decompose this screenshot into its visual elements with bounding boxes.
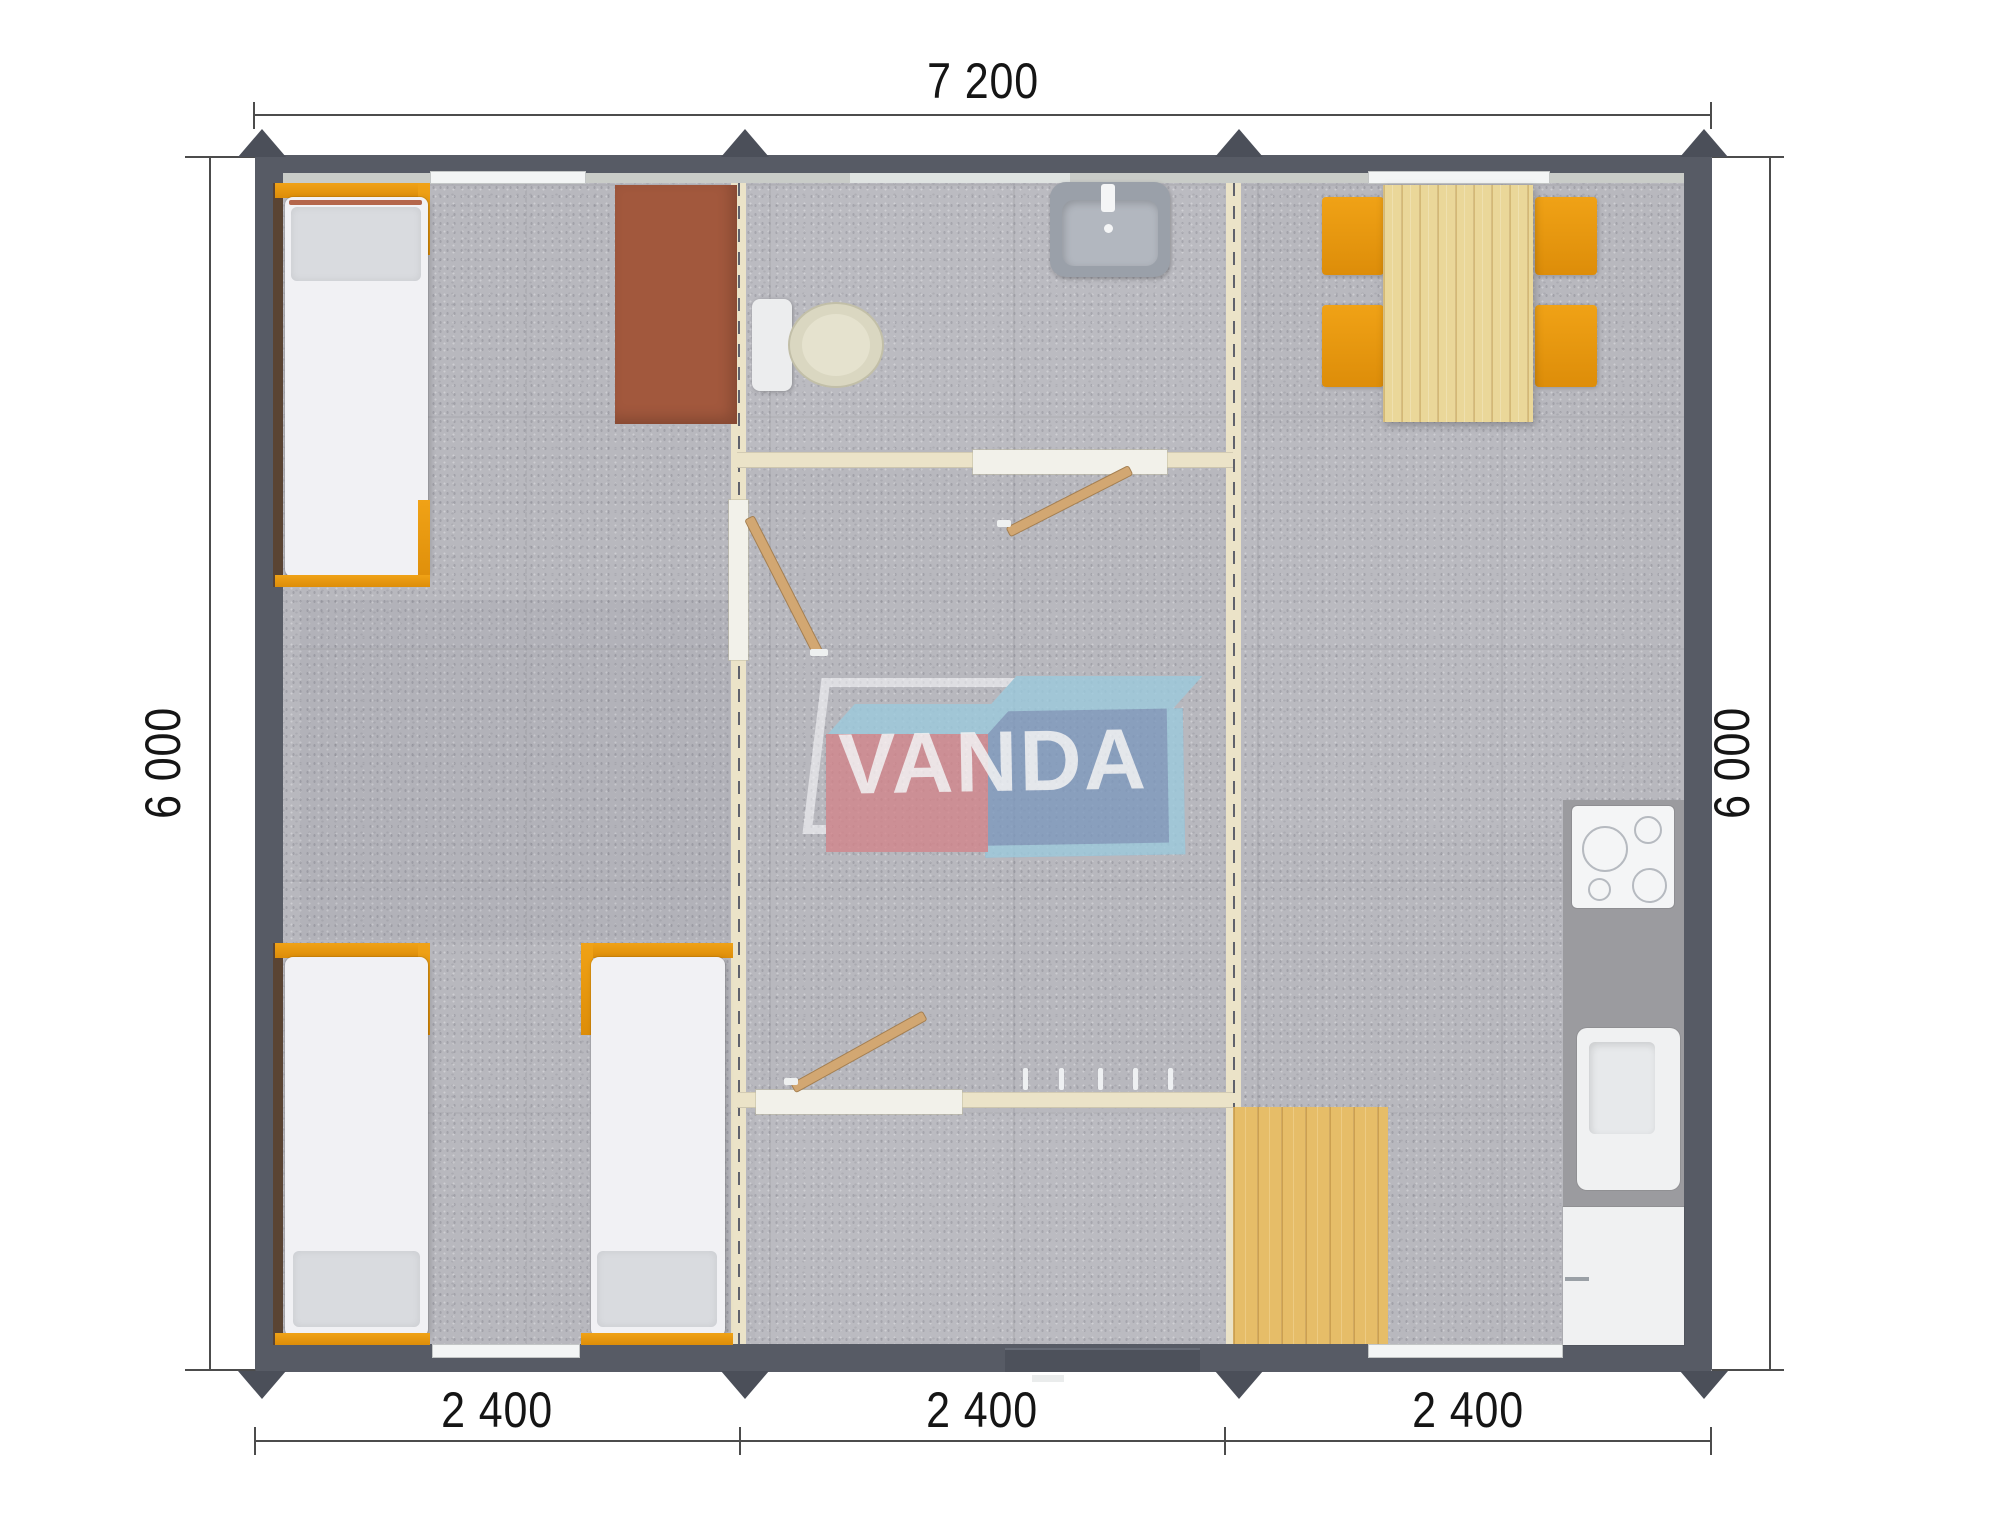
- chair-icon: [1322, 305, 1384, 387]
- dimension-label-bottom-right: 2 400: [1368, 1384, 1568, 1436]
- window: [432, 1344, 580, 1358]
- floor-plan-canvas: 7 200 2 400 2 400 2 400 6 000 6 000: [0, 0, 2000, 1537]
- dimension-text: 7 200: [927, 52, 1039, 110]
- dimension-text: 2 400: [1412, 1384, 1524, 1436]
- bed-frame: [275, 183, 430, 198]
- cooktop-icon: [1572, 806, 1674, 908]
- module-joint-marker: [1680, 129, 1728, 157]
- kitchen-cabinet: [1563, 1207, 1684, 1345]
- window: [850, 173, 1070, 183]
- dimension-label-top: 7 200: [883, 52, 1083, 110]
- module-joint-marker: [721, 129, 769, 157]
- single-bed-icon: [273, 183, 430, 587]
- module-joint-marker: [721, 1371, 769, 1399]
- faucet-icon: [1101, 184, 1115, 212]
- dimension-text: 2 400: [441, 1384, 553, 1436]
- logo-blue-box-top: [984, 676, 1202, 712]
- bed-frame: [581, 943, 733, 958]
- logo-text: VANDA: [817, 709, 1169, 815]
- dimension-tick: [1710, 102, 1712, 129]
- burner-icon: [1582, 826, 1628, 872]
- bed-side-rail: [273, 943, 283, 1345]
- dimension-line-top: [255, 114, 1712, 116]
- bed-pillow: [291, 207, 421, 281]
- dimension-label-bottom-left: 2 400: [397, 1384, 597, 1436]
- window: [430, 171, 586, 184]
- module-joint-marker: [238, 129, 286, 157]
- dimension-text: 6 000: [137, 707, 189, 819]
- toilet-seat: [802, 314, 870, 376]
- single-bed-icon: [273, 943, 430, 1345]
- bed-side-rail: [273, 183, 283, 587]
- dimension-tick: [739, 1427, 741, 1455]
- bed-pillow: [597, 1251, 717, 1327]
- cabinet-handle: [1565, 1277, 1589, 1281]
- dimension-label-left: 6 000: [137, 663, 189, 863]
- door-opening: [756, 1090, 962, 1114]
- window: [1368, 1344, 1563, 1358]
- entrance-door: [1005, 1348, 1200, 1372]
- burner-icon: [1634, 816, 1662, 844]
- burner-icon: [1588, 878, 1611, 901]
- single-bed-icon: [581, 943, 733, 1345]
- dimension-line-left: [209, 157, 211, 1371]
- bed-frame: [418, 500, 430, 587]
- chair-icon: [1535, 305, 1597, 387]
- toilet-tank: [752, 299, 792, 391]
- window: [1368, 171, 1550, 184]
- kitchen-sink-unit: [1577, 1028, 1680, 1190]
- door-hinge: [810, 649, 828, 656]
- dimension-line-bottom: [255, 1440, 1712, 1442]
- dimension-tick: [254, 1427, 256, 1455]
- coat-hook-icon: [1168, 1068, 1173, 1090]
- bed-pillow: [293, 1251, 420, 1327]
- dimension-tick: [1710, 1427, 1712, 1455]
- entry-mat-wood-floor: [1233, 1107, 1388, 1344]
- dimension-text: 6 000: [1706, 707, 1758, 819]
- bed-frame: [275, 943, 430, 958]
- chair-icon: [1535, 197, 1597, 275]
- chair-icon: [1322, 197, 1384, 275]
- dining-table-icon: [1383, 185, 1533, 422]
- module-joint-marker: [1215, 129, 1263, 157]
- module-joint-marker: [1680, 1371, 1728, 1399]
- dimension-tick: [253, 102, 255, 129]
- coat-hook-icon: [1059, 1068, 1064, 1090]
- coat-hook-icon: [1133, 1068, 1138, 1090]
- faucet-handle: [1104, 224, 1113, 233]
- desk-icon: [615, 185, 737, 424]
- module-joint-marker: [1215, 1371, 1263, 1399]
- bed-frame: [275, 1333, 430, 1345]
- vanda-watermark-logo: VANDA: [798, 660, 1198, 872]
- door-hinge: [784, 1078, 798, 1085]
- dimension-label-bottom-middle: 2 400: [882, 1384, 1082, 1436]
- module-joint-marker: [238, 1371, 286, 1399]
- door-hinge: [997, 520, 1011, 527]
- coat-hook-icon: [1023, 1068, 1028, 1090]
- bed-frame: [581, 1333, 733, 1345]
- coat-hook-icon: [1098, 1068, 1103, 1090]
- door-opening: [973, 450, 1167, 474]
- bed-frame: [275, 575, 430, 587]
- burner-icon: [1632, 868, 1667, 903]
- dimension-label-right: 6 000: [1706, 663, 1758, 863]
- dimension-line-right: [1769, 157, 1771, 1371]
- bed-headboard-line: [289, 200, 422, 205]
- entrance-step: [1032, 1375, 1064, 1382]
- dimension-text: 2 400: [926, 1384, 1038, 1436]
- kitchen-sink-basin: [1589, 1042, 1655, 1134]
- dimension-tick: [1224, 1427, 1226, 1455]
